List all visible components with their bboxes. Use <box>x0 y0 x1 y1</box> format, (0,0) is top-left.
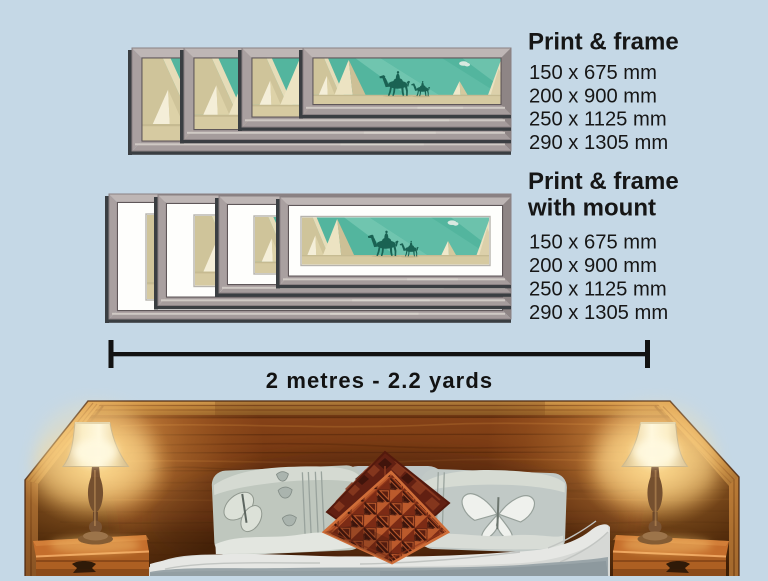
svg-text:250 x 1125 mm: 250 x 1125 mm <box>529 278 667 300</box>
svg-text:Print & frame: Print & frame <box>528 29 679 56</box>
svg-text:Print & frame: Print & frame <box>528 168 679 195</box>
svg-text:with mount: with mount <box>527 194 656 221</box>
svg-text:250 x 1125 mm: 250 x 1125 mm <box>529 109 667 131</box>
svg-text:290 x 1305 mm: 290 x 1305 mm <box>529 302 668 324</box>
svg-text:290 x 1305 mm: 290 x 1305 mm <box>529 132 668 154</box>
svg-text:150 x 675 mm: 150 x 675 mm <box>529 232 657 254</box>
svg-text:150 x 675 mm: 150 x 675 mm <box>529 62 657 84</box>
svg-text:200 x 900 mm: 200 x 900 mm <box>529 85 657 107</box>
svg-text:200 x 900 mm: 200 x 900 mm <box>529 255 657 277</box>
svg-text:2 metres - 2.2 yards: 2 metres - 2.2 yards <box>266 368 493 393</box>
